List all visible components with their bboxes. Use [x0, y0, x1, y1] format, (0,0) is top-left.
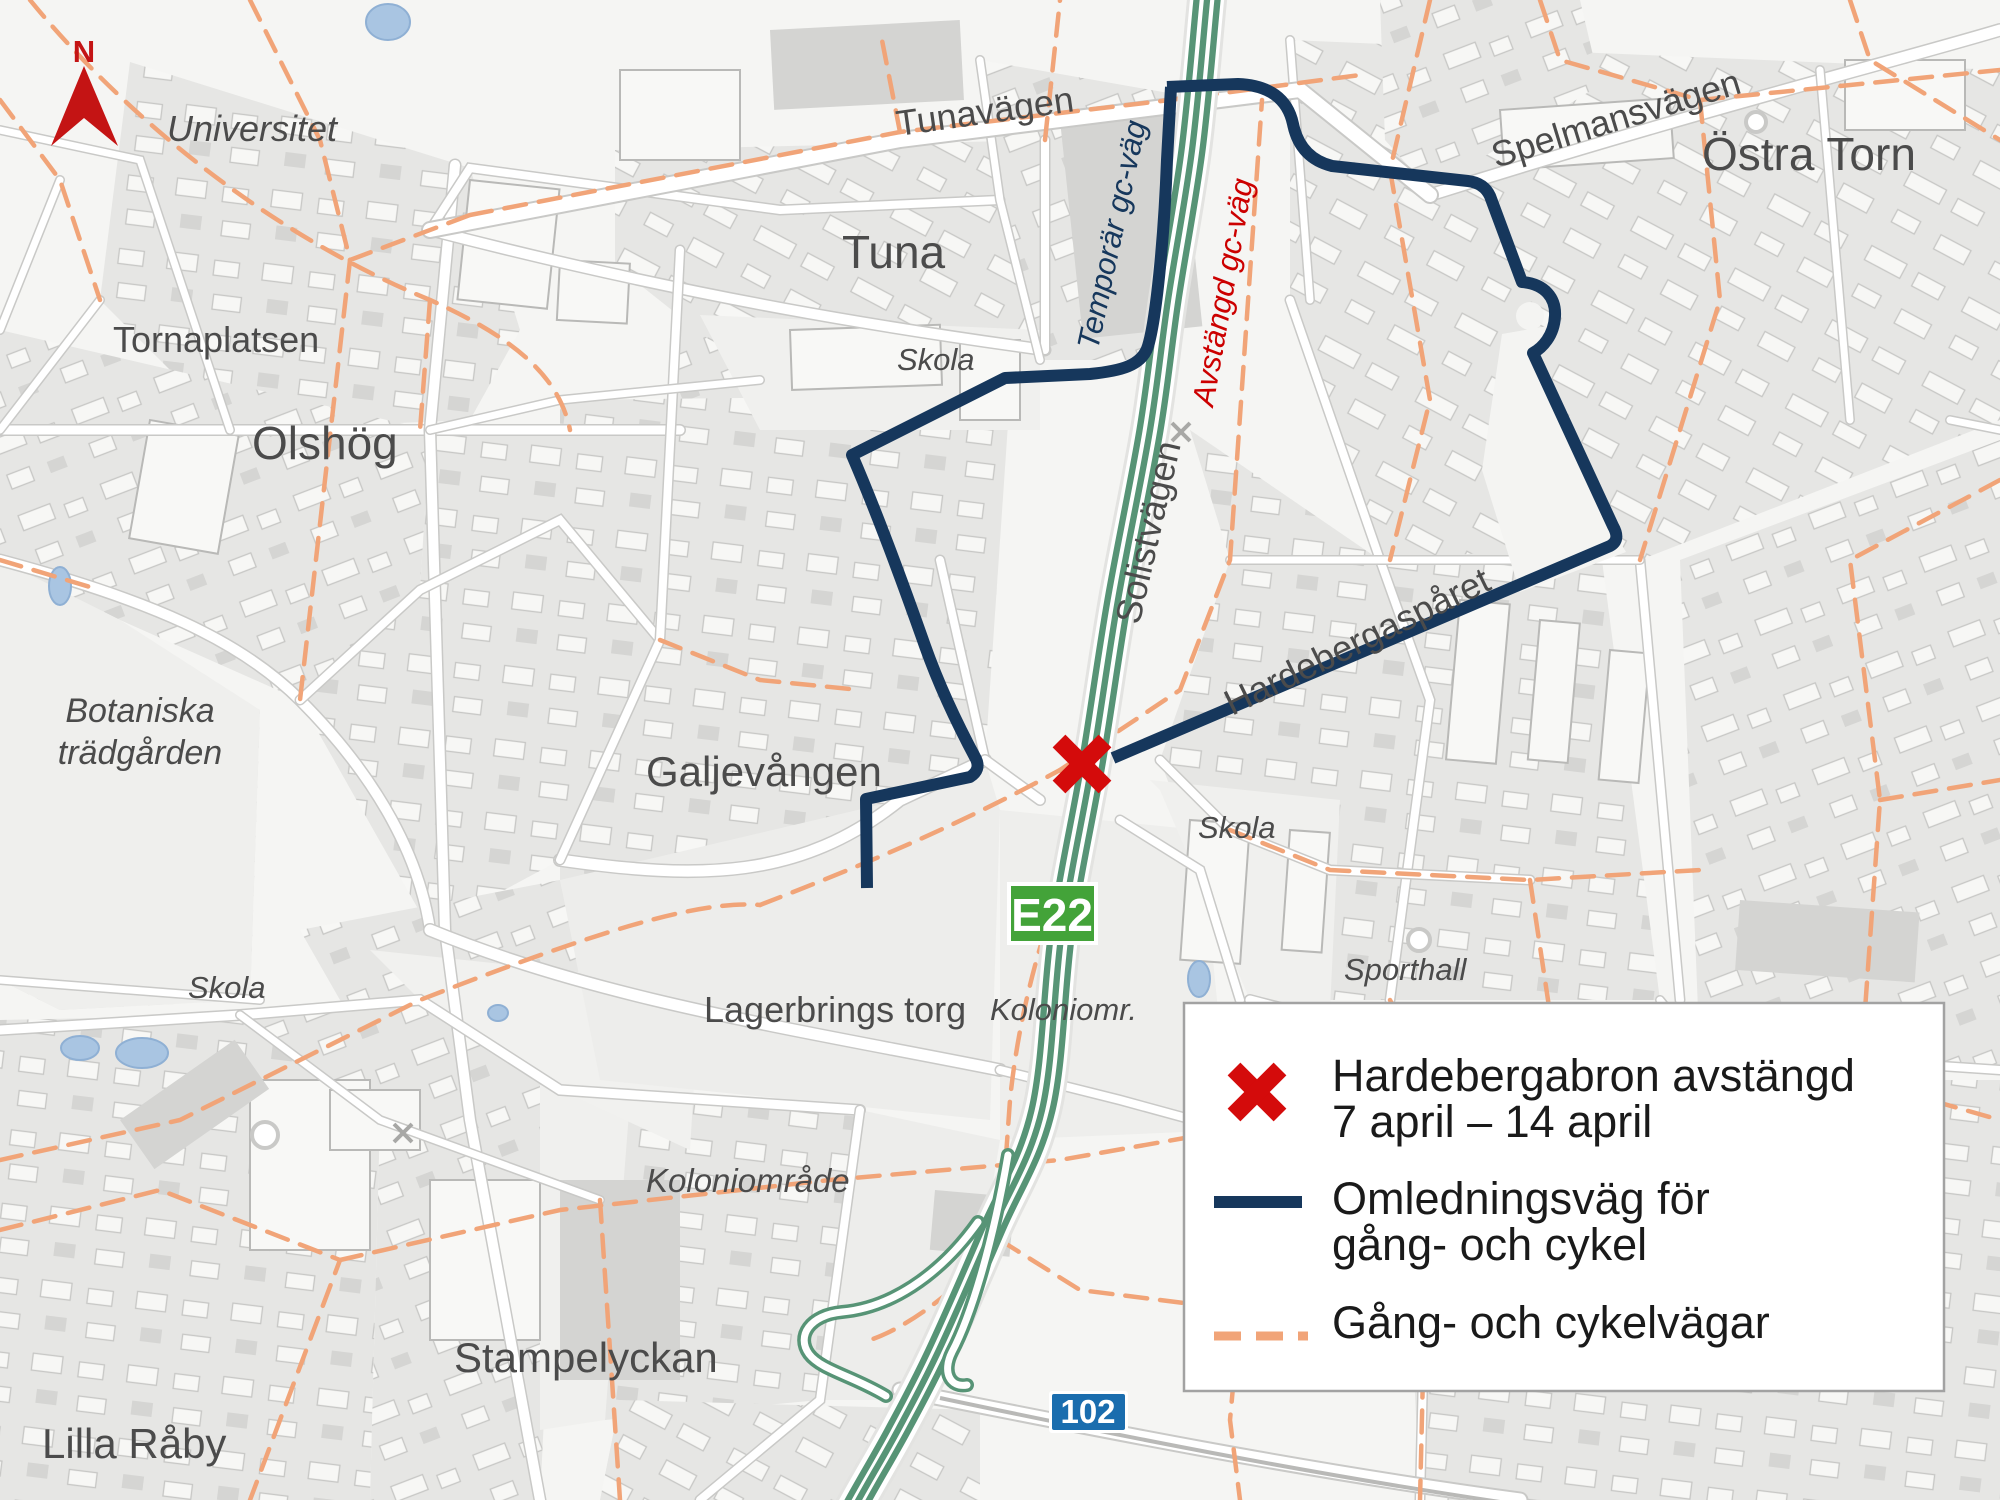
- svg-text:Galjevången: Galjevången: [646, 748, 882, 795]
- svg-text:Universitet: Universitet: [167, 108, 339, 149]
- svg-text:Tornaplatsen: Tornaplatsen: [113, 319, 319, 360]
- svg-text:Skola: Skola: [1198, 810, 1276, 845]
- svg-text:Skola: Skola: [188, 970, 266, 1005]
- svg-text:Tuna: Tuna: [842, 226, 946, 278]
- svg-text:Olshög: Olshög: [252, 417, 398, 469]
- svg-text:Botaniska: Botaniska: [65, 692, 214, 730]
- svg-text:Sporthall: Sporthall: [1344, 952, 1467, 987]
- svg-text:trädgården: trädgården: [58, 734, 222, 772]
- svg-text:102: 102: [1060, 1393, 1115, 1430]
- svg-text:N: N: [73, 34, 95, 69]
- svg-text:Omledningsväg för: Omledningsväg för: [1332, 1173, 1710, 1224]
- svg-text:gång- och cykel: gång- och cykel: [1332, 1219, 1647, 1270]
- svg-text:Koloniområde: Koloniområde: [646, 1162, 850, 1199]
- svg-text:Stampelyckan: Stampelyckan: [454, 1334, 718, 1381]
- svg-text:Lilla Råby: Lilla Råby: [42, 1420, 226, 1467]
- svg-text:Hardebergabron avstängd: Hardebergabron avstängd: [1332, 1050, 1855, 1101]
- svg-text:Lagerbrings torg: Lagerbrings torg: [704, 989, 966, 1030]
- svg-text:Skola: Skola: [897, 342, 975, 377]
- svg-text:Gång- och cykelvägar: Gång- och cykelvägar: [1332, 1297, 1770, 1348]
- svg-text:Koloniomr.: Koloniomr.: [990, 992, 1137, 1027]
- svg-text:E22: E22: [1011, 889, 1093, 941]
- svg-text:7 april – 14 april: 7 april – 14 april: [1332, 1096, 1652, 1147]
- svg-text:Östra Torn: Östra Torn: [1702, 128, 1916, 180]
